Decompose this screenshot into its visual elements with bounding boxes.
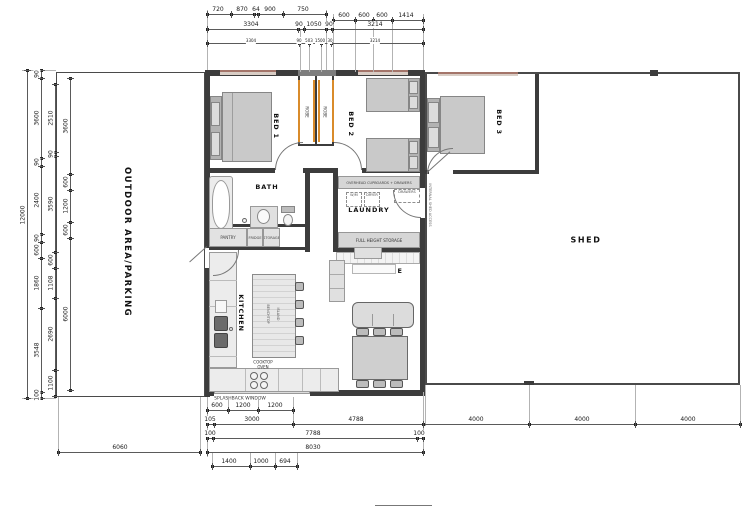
dim-label: 1860 xyxy=(34,275,41,290)
dim-tick xyxy=(52,268,59,269)
dim-tick xyxy=(293,407,294,414)
dim-tick xyxy=(423,449,424,456)
dining-chair xyxy=(356,328,369,336)
robe1-label: ROBE xyxy=(305,106,310,117)
extension-line xyxy=(58,397,59,454)
dim-label: 3548 xyxy=(34,342,41,357)
laundry-step xyxy=(352,264,396,274)
bed3-right-wall xyxy=(535,74,539,174)
dim-line xyxy=(207,410,293,411)
bed2-door-swing xyxy=(334,142,362,170)
dim-label: 3214 xyxy=(367,21,382,28)
dim-tick xyxy=(67,222,74,223)
extension-line xyxy=(740,385,741,426)
storage-cabinet: STORAGE xyxy=(263,228,280,247)
laundry-door-swing xyxy=(393,190,421,218)
dim-tick xyxy=(423,26,424,33)
island-bench xyxy=(252,274,296,358)
hall-wall xyxy=(205,168,275,173)
dim-label: 8030 xyxy=(305,444,320,451)
dim-label: 7788 xyxy=(305,430,320,437)
dim-tick xyxy=(228,407,229,414)
extension-line xyxy=(635,385,636,426)
sink-tap xyxy=(229,327,233,331)
dim-tick xyxy=(24,70,31,71)
dim-label: 1200 xyxy=(63,198,70,213)
bed2-pillow xyxy=(409,156,418,169)
dim-line xyxy=(70,78,71,390)
dim-tick xyxy=(38,78,45,79)
dim-label: 900 xyxy=(264,6,275,13)
bed1-pillow xyxy=(211,102,220,126)
extension-line xyxy=(321,43,322,72)
toilet-tank xyxy=(281,206,295,213)
dim-tick xyxy=(52,370,59,371)
dim-label: 1200 xyxy=(235,402,250,409)
tv-unit xyxy=(329,260,345,302)
dim-label: 1100 xyxy=(48,375,55,390)
extension-line xyxy=(529,385,530,426)
counter-division xyxy=(245,369,246,391)
dim-tick xyxy=(52,396,59,397)
fridge-space: FRIDGE xyxy=(247,228,263,247)
dim-tick xyxy=(326,11,327,18)
dim-label: 1414 xyxy=(398,12,413,19)
dim-tick xyxy=(635,421,636,428)
dim-label: 90 xyxy=(295,21,303,28)
dim-label: 1050 xyxy=(306,21,321,28)
dim-line xyxy=(207,438,423,439)
bed3-bottom-wall xyxy=(453,170,539,174)
dim-tick xyxy=(67,238,74,239)
pantry-cabinet: PANTRY xyxy=(209,228,247,247)
dim-tick xyxy=(200,449,201,456)
dim-label: 600 xyxy=(376,12,387,19)
washing-machine: W/M xyxy=(346,192,362,207)
extension-line xyxy=(355,20,356,72)
dim-label: 3304 xyxy=(243,21,258,28)
dim-label: 4788 xyxy=(348,416,363,423)
dim-label: 600 xyxy=(48,254,55,265)
bathtub-basin xyxy=(212,180,230,229)
dim-label: 600 xyxy=(63,176,70,187)
counter-division xyxy=(302,369,303,391)
dining-chair xyxy=(390,380,403,388)
extension-line xyxy=(425,385,426,426)
dim-label: 3600 xyxy=(63,118,70,133)
dim-label: 3000 xyxy=(244,416,259,423)
pantry-label: PANTRY xyxy=(220,235,235,240)
dim-tick xyxy=(52,84,59,85)
dim-label: 600 xyxy=(63,224,70,235)
sofa-seat-line xyxy=(393,314,394,326)
bath-right-wall xyxy=(305,168,310,252)
bed1-door-swing xyxy=(275,142,303,170)
dining-chair xyxy=(356,380,369,388)
dim-label: 750 xyxy=(297,6,308,13)
bed2-single-mattress xyxy=(366,138,410,172)
dim-line xyxy=(58,452,200,453)
extension-line xyxy=(300,29,301,72)
dim-label: 600 xyxy=(358,12,369,19)
bed2-window xyxy=(358,70,408,75)
sofa-seat-line xyxy=(372,314,373,326)
dim-label: 2690 xyxy=(48,326,55,341)
dim-tick xyxy=(207,26,208,33)
dim-tick xyxy=(207,40,208,47)
dim-tick xyxy=(423,40,424,47)
dim-line xyxy=(207,424,423,425)
dim-label: 12000 xyxy=(20,205,27,224)
dim-label: 30 xyxy=(327,37,332,44)
dim-label: 90 xyxy=(48,150,55,158)
robe-wall xyxy=(298,144,334,146)
sofa xyxy=(352,302,414,328)
dim-tick xyxy=(392,17,393,24)
dim-line xyxy=(423,424,740,425)
bed1-pillow xyxy=(211,132,220,156)
dim-label: 1400 xyxy=(221,458,236,465)
full-height-storage: FULL HEIGHT STORAGE xyxy=(338,232,420,248)
dim-tick xyxy=(304,26,305,33)
dim-label: 600 xyxy=(211,402,222,409)
kitchen-label: KITCHEN xyxy=(237,294,245,332)
dim-tick xyxy=(24,398,31,399)
dining-chair xyxy=(373,328,386,336)
dim-tick xyxy=(231,11,232,18)
dim-line xyxy=(55,84,56,396)
extension-line xyxy=(200,397,201,454)
dim-label: 600 xyxy=(338,12,349,19)
dim-tick xyxy=(207,449,208,456)
bed1-window xyxy=(220,70,276,75)
shed-panel-mark xyxy=(650,70,658,76)
cooktop-burner xyxy=(250,381,258,389)
dim-label: 1500 xyxy=(315,37,325,44)
house-right-wall xyxy=(420,218,425,396)
dim-label: 4000 xyxy=(574,416,589,423)
bed3-window xyxy=(438,72,518,76)
dining-table xyxy=(352,336,408,380)
extension-line xyxy=(392,20,393,72)
tv-unit-shelf xyxy=(330,274,344,275)
dim-label: 90 xyxy=(34,234,41,242)
bar-stool xyxy=(295,336,304,345)
dim-line xyxy=(212,466,297,467)
robe-door-track xyxy=(298,80,300,142)
misc-line xyxy=(375,505,432,506)
dim-tick xyxy=(355,17,356,24)
dim-tick xyxy=(529,421,530,428)
dim-tick xyxy=(38,166,45,167)
dim-tick xyxy=(293,421,294,428)
robe-door-track xyxy=(318,80,320,142)
dim-tick xyxy=(38,308,45,309)
dim-tick xyxy=(58,449,59,456)
dim-label: 90 xyxy=(34,70,41,78)
dining-chair xyxy=(390,328,403,336)
shed-label: SHED xyxy=(571,236,602,245)
bed3-label: BED 3 xyxy=(495,109,503,135)
full-height-storage-label: FULL HEIGHT STORAGE xyxy=(356,238,403,243)
dim-tick xyxy=(258,407,259,414)
robe-wall xyxy=(315,76,317,146)
dim-tick xyxy=(740,421,741,428)
bed3-pillow xyxy=(428,102,439,123)
dim-label: 64 xyxy=(252,6,260,13)
dim-line xyxy=(207,29,423,30)
sink-bowl xyxy=(214,333,228,348)
extension-line xyxy=(309,43,310,72)
dim-label: 1108 xyxy=(48,275,55,290)
outdoor-area-label: OUTDOOR AREA/PARKING xyxy=(122,167,132,317)
robe-door-track xyxy=(332,80,334,142)
dim-tick xyxy=(67,390,74,391)
storage-label: STORAGE xyxy=(263,236,280,240)
dim-label: 6060 xyxy=(112,444,127,451)
bed3-mattress xyxy=(440,96,485,154)
laundry-overhead-label: OVERHEAD CUPBOARDS + DRAWERS xyxy=(346,181,411,185)
dim-label: 3590 xyxy=(48,196,55,211)
dim-line xyxy=(207,14,326,15)
dim-tick xyxy=(283,11,284,18)
dim-label: 600 xyxy=(34,244,41,255)
dim-label: 2510 xyxy=(48,110,55,125)
bed3-pillow xyxy=(428,127,439,148)
dim-label: 3600 xyxy=(34,110,41,125)
floor-drain xyxy=(242,218,247,223)
dim-tick xyxy=(423,421,424,428)
bed1-blanket-line xyxy=(232,93,233,161)
floor-plan-canvas: OUTDOOR AREA/PARKING SHED BED 1 BED 2 BE… xyxy=(0,0,750,512)
robe-door-track xyxy=(313,80,315,142)
bed2-single-mattress xyxy=(366,78,410,112)
toilet-bowl xyxy=(283,214,293,226)
bed2-label: BED 2 xyxy=(347,111,355,137)
dim-label: 1000 xyxy=(253,458,268,465)
fridge-label: FRIDGE xyxy=(248,236,261,240)
dryer-label: DRYER xyxy=(366,193,378,197)
dim-tick xyxy=(207,11,208,18)
vanity-basin xyxy=(257,209,270,224)
dim-tick xyxy=(297,463,298,470)
robe2-label: ROBE xyxy=(323,106,328,117)
side-table xyxy=(354,247,382,259)
dining-chair xyxy=(373,380,386,388)
counter-division xyxy=(278,369,279,391)
sink-drainer xyxy=(215,300,227,313)
island-label: ISLAND xyxy=(276,308,280,321)
sink-bowl xyxy=(214,316,228,331)
dim-label: 90 xyxy=(325,21,333,28)
dim-tick xyxy=(423,17,424,24)
dim-tick xyxy=(67,174,74,175)
dim-label: 105 xyxy=(204,416,215,423)
cooktop-burner xyxy=(250,372,258,380)
dim-label: 870 xyxy=(236,6,247,13)
laundry-overhead-cupboards: OVERHEAD CUPBOARDS + DRAWERS xyxy=(338,176,420,189)
oven-label: OVEN xyxy=(257,365,268,370)
dim-label: 4000 xyxy=(680,416,695,423)
bar-stool xyxy=(295,300,304,309)
dryer: DRYER xyxy=(364,192,380,207)
dim-tick xyxy=(38,242,45,243)
dim-label: 90 xyxy=(296,37,301,44)
dim-label: 2400 xyxy=(34,192,41,207)
dim-tick xyxy=(52,252,59,253)
dim-tick xyxy=(212,463,213,470)
dim-label: 100 xyxy=(413,430,424,437)
bar-stool xyxy=(295,318,304,327)
cooktop-burner xyxy=(260,381,268,389)
bar-stool xyxy=(295,282,304,291)
island-benchtop-label: BENCHTOP xyxy=(266,304,270,323)
counter-division xyxy=(320,369,321,391)
dim-label: 100 xyxy=(34,389,41,400)
dim-tick xyxy=(207,407,208,414)
robe-top-wall xyxy=(298,70,336,76)
dim-tick xyxy=(250,463,251,470)
dim-line xyxy=(27,70,28,398)
dim-label: 1200 xyxy=(267,402,282,409)
dim-label: 6000 xyxy=(63,306,70,321)
bed2-pillow xyxy=(409,141,418,154)
dim-tick xyxy=(275,463,276,470)
dim-label: 90 xyxy=(34,158,41,166)
internal-shed-access-label: INTERNAL SHED ACCESS xyxy=(428,183,432,226)
dim-label: 720 xyxy=(212,6,223,13)
dim-label: 694 xyxy=(279,458,290,465)
counter-division xyxy=(209,280,237,281)
counter-division xyxy=(209,356,237,357)
dim-line xyxy=(207,452,423,453)
laundry-label: LAUNDRY xyxy=(348,206,389,214)
bed2-pillow xyxy=(409,81,418,94)
dim-tick xyxy=(38,258,45,259)
dim-label: 503 xyxy=(305,37,313,44)
bed1-mattress xyxy=(222,92,272,162)
dim-tick xyxy=(67,190,74,191)
dim-label: 3214 xyxy=(370,37,380,44)
bath-label: BATH xyxy=(255,183,278,191)
tv-unit-shelf xyxy=(330,288,344,289)
dim-tick xyxy=(67,78,74,79)
dim-label: 3304 xyxy=(246,37,256,44)
dim-tick xyxy=(52,298,59,299)
bed2-pillow xyxy=(409,96,418,109)
dim-label: 4000 xyxy=(468,416,483,423)
cooktop-burner xyxy=(260,372,268,380)
bed1-label: BED 1 xyxy=(272,113,280,139)
dim-label: 100 xyxy=(204,430,215,437)
washing-machine-label: W/M xyxy=(350,193,358,197)
